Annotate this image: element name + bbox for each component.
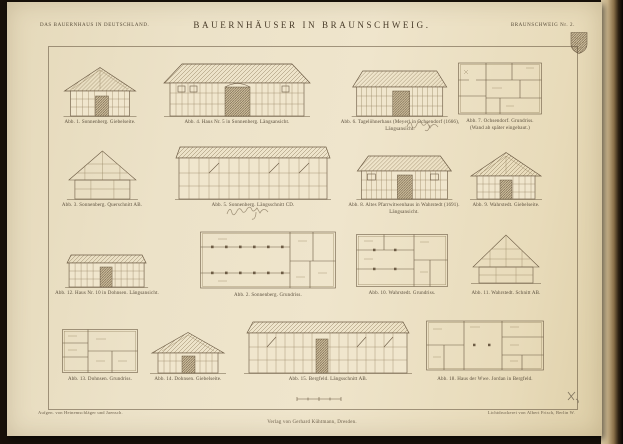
scanned-plate-page: { "plate": { "series_title": "DAS BAUERN… (0, 0, 623, 444)
floor-plan-drawing (424, 317, 546, 375)
floor-plan-drawing (456, 60, 544, 117)
figure-caption: Abb. 13. Dohnsen. Grundriss. (60, 377, 140, 384)
gable-elevation-drawing (63, 66, 138, 118)
figure-caption: Abb. 15. Bergfeld. Längsschnitt AB. (242, 377, 414, 384)
figure-caption: Abb. 18. Haus der Wwe. Jordan in Bergfel… (424, 377, 546, 384)
figure-caption: Abb. 8. Altes Pfarrwitwenhaus in Wahrste… (348, 203, 459, 216)
credit-publisher: Verlag von Gerhard Kühtmann, Dresden. (267, 420, 357, 425)
figure-abb11: Abb. 11. Wahrstedt. Schnitt AB. (468, 233, 544, 298)
figure-abb8: Abb. 8. Altes Pfarrwitwenhaus in Wahrste… (348, 154, 459, 216)
figure-abb5: Abb. 5. Sonnenberg. Längsschnitt CD. (173, 143, 333, 210)
figure-caption: Abb. 2. Sonnenberg. Grundriss. (198, 293, 338, 300)
floor-plan-drawing (354, 232, 450, 289)
figure-abb12: Abb. 12. Haus Nr. 10 in Dohnsen. Längsan… (55, 251, 159, 298)
longitudinal-section-drawing (173, 143, 333, 201)
figure-abb3: Abb. 3. Sonnenberg. Querschnitt AB. (62, 149, 142, 210)
gable-elevation-drawing (468, 151, 544, 201)
credit-surveyors: Aufgen. von Heinemschläger und Jaensch. (38, 410, 123, 415)
long-elevation-drawing (353, 154, 455, 201)
figure-abb15: Abb. 15. Bergfeld. Längsschnitt AB. (242, 319, 414, 384)
long-elevation-drawing (162, 62, 312, 118)
floor-plan-drawing (198, 229, 338, 291)
book-page-edge (601, 0, 623, 444)
plate-number: BRAUNSCHWEIG Nr. 2. (511, 23, 575, 28)
scale-bar (296, 396, 342, 402)
figure-caption: Abb. 3. Sonnenberg. Querschnitt AB. (62, 203, 142, 210)
figure-caption: Abb. 10. Wahrstedt. Grundriss. (354, 291, 450, 298)
figure-abb18: Abb. 18. Haus der Wwe. Jordan in Bergfel… (424, 317, 546, 384)
long-elevation-drawing (350, 68, 450, 118)
figure-abb9: Abb. 9. Wahrstedt. Giebelseite. (468, 151, 544, 210)
credit-printer: Lichtdruckerei von Albert Frisch, Berlin… (488, 410, 575, 415)
plate-paper: DAS BAUERNHAUS IN DEUTSCHLAND. BAUERNHÄU… (7, 2, 602, 436)
figure-abb1: Abb. 1. Sonnenberg. Giebelseite. (63, 66, 138, 127)
figure-abb13: Abb. 13. Dohnsen. Grundriss. (60, 327, 140, 384)
figure-caption: Abb. 11. Wahrstedt. Schnitt AB. (468, 291, 544, 298)
handwritten-note (225, 206, 277, 222)
figure-abb7: Abb. 7. Ochsendorf. Grundriss.(Wand ab s… (456, 60, 544, 132)
figure-abb4: Abb. 4. Haus Nr. 5 in Sonnenberg. Längsa… (162, 62, 312, 127)
longitudinal-section-drawing (242, 319, 414, 375)
floor-plan-drawing (60, 327, 140, 375)
figure-abb10: Abb. 10. Wahrstedt. Grundriss. (354, 232, 450, 298)
pencil-mark (565, 390, 581, 404)
figure-caption: Abb. 1. Sonnenberg. Giebelseite. (63, 120, 138, 127)
figure-caption: Abb. 12. Haus Nr. 10 in Dohnsen. Längsan… (55, 291, 159, 298)
gable-elevation-drawing (148, 331, 228, 375)
cross-section-drawing (65, 149, 140, 201)
figure-caption: Abb. 14. Dohnsen. Giebelseite. (148, 377, 228, 384)
figure-abb2: Abb. 2. Sonnenberg. Grundriss. (198, 229, 338, 300)
cross-section-drawing (468, 233, 544, 289)
figure-caption: Abb. 7. Ochsendorf. Grundriss.(Wand ab s… (456, 119, 544, 132)
series-title: DAS BAUERNHAUS IN DEUTSCHLAND. (40, 23, 149, 28)
figure-caption: Abb. 9. Wahrstedt. Giebelseite. (468, 203, 544, 210)
plate-title: BAUERNHÄUSER IN BRAUNSCHWEIG. (193, 20, 430, 30)
handwritten-note (405, 119, 443, 132)
figure-abb14: Abb. 14. Dohnsen. Giebelseite. (148, 331, 228, 384)
figure-caption: Abb. 4. Haus Nr. 5 in Sonnenberg. Längsa… (162, 120, 312, 127)
long-elevation-drawing (65, 251, 150, 289)
